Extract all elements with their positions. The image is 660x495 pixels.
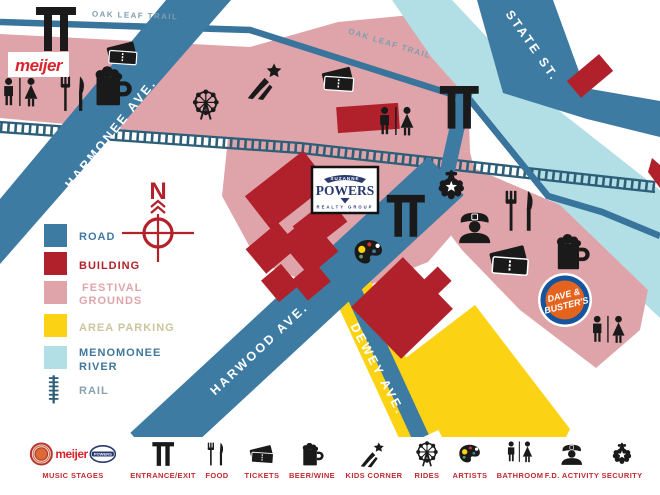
music-stage-powers-logo: POWERS — [90, 444, 117, 464]
key-item-rides: RIDES — [413, 440, 441, 480]
key-item-fd-activity: F.D. ACTIVITY — [545, 440, 600, 480]
entrance-icon — [150, 441, 176, 467]
svg-text:RIVER: RIVER — [79, 361, 118, 373]
legend-swatch-parking — [44, 314, 67, 337]
key-item-entrance-exit: ENTRANCE/EXIT — [130, 440, 196, 480]
svg-text:meijer: meijer — [15, 56, 64, 75]
svg-text:POWERS: POWERS — [316, 183, 375, 198]
music-stage-meijer-logo: meijer — [55, 447, 87, 461]
key-item-artists: ARTISTS — [453, 440, 488, 480]
fd-activity-icon — [559, 441, 585, 467]
svg-text:REALTY GROUP: REALTY GROUP — [317, 205, 374, 210]
legend-swatch-road — [44, 224, 67, 247]
artists-icon — [457, 441, 483, 467]
svg-text:GROUNDS: GROUNDS — [79, 295, 142, 307]
meijer-logo: meijer — [8, 52, 69, 77]
oak-leaf-trail-label: OAK LEAF TRAIL — [92, 9, 179, 21]
bathroom-icon — [506, 440, 534, 468]
map-legend: ROAD BUILDING FESTIVAL GROUNDS AREA PARK… — [44, 224, 175, 403]
rides-icon — [413, 440, 441, 468]
security-icon — [610, 442, 635, 467]
svg-text:ROAD: ROAD — [79, 231, 115, 243]
festival-map-page: meijer SUZANNE POWERS REALTY GROUP DAVE … — [0, 0, 660, 495]
music-stage-burger-logo-icon — [29, 442, 53, 466]
legend-rail-icon — [49, 375, 59, 403]
dave-and-busters-logo: DAVE & BUSTER'S — [538, 273, 592, 327]
key-item-music-stages: meijer POWERS MUSIC STAGES — [29, 440, 116, 480]
svg-text:BUILDING: BUILDING — [79, 260, 140, 272]
powers-logo: SUZANNE POWERS REALTY GROUP — [312, 167, 378, 213]
legend-swatch-festival — [44, 281, 67, 304]
svg-text:AREA PARKING: AREA PARKING — [79, 322, 175, 334]
food-icon — [204, 441, 230, 467]
svg-text:MENOMONEE: MENOMONEE — [79, 347, 161, 359]
beer-icon — [299, 441, 325, 467]
tickets-icon — [248, 440, 276, 468]
svg-text:POWERS: POWERS — [94, 452, 112, 457]
bottom-key: meijer POWERS MUSIC STAGES ENTRANCE/EXIT… — [0, 437, 660, 495]
festival-map: meijer SUZANNE POWERS REALTY GROUP DAVE … — [0, 0, 660, 437]
key-item-security: SECURITY — [601, 440, 642, 480]
compass: N — [122, 178, 194, 262]
key-item-beer-wine: BEER/WINE — [289, 440, 335, 480]
svg-text:SUZANNE: SUZANNE — [330, 176, 359, 181]
svg-text:FESTIVAL: FESTIVAL — [82, 282, 142, 294]
kids-corner-icon — [360, 440, 388, 468]
legend-swatch-river — [44, 346, 67, 369]
key-item-kids-corner: KIDS CORNER — [346, 440, 403, 480]
legend-swatch-building — [44, 252, 67, 275]
key-item-bathroom: BATHROOM — [497, 440, 544, 480]
key-item-tickets: TICKETS — [245, 440, 280, 480]
svg-text:RAIL: RAIL — [79, 385, 109, 397]
key-item-food: FOOD — [204, 440, 230, 480]
